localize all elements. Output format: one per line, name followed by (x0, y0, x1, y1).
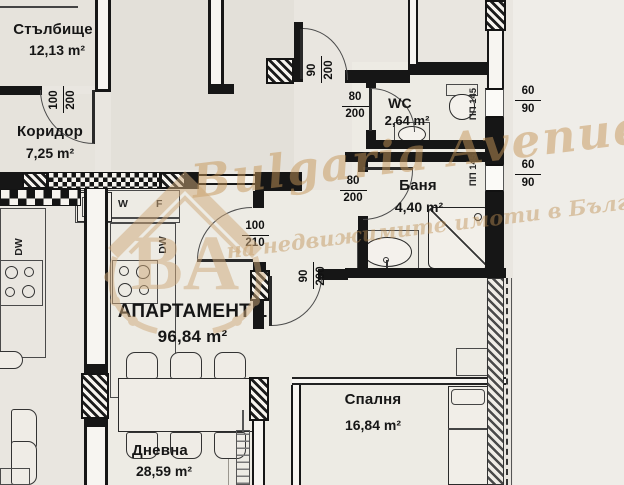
dim-window1-height: 90 (514, 104, 542, 116)
dim-num: 80 (347, 176, 360, 188)
hatch-column (81, 373, 109, 419)
room-area-living: 28,59 m² (104, 464, 224, 479)
stove-burner (5, 266, 18, 279)
dim-den: 200 (316, 266, 328, 285)
watermark-logo: BA (85, 165, 285, 335)
exterior-wall-hatch (487, 278, 504, 485)
wall (0, 86, 42, 95)
room-label-bedroom: Спалня (318, 392, 428, 409)
dim-num: 90 (307, 64, 319, 77)
exterior-wall-line (506, 278, 512, 485)
room-label-living: Дневна (100, 443, 220, 460)
dim-den: 200 (343, 193, 362, 205)
dim-line (515, 100, 541, 101)
dim-num: 90 (299, 270, 311, 283)
room-area-bedroom: 16,84 m² (318, 418, 428, 433)
dim-num: 100 (49, 90, 61, 109)
room-label-wc: WC (380, 96, 420, 111)
hatch-column (249, 377, 269, 421)
dim-door-hall: 90200 (293, 253, 333, 299)
radiator (236, 430, 250, 485)
wall (84, 364, 108, 373)
wall (345, 268, 506, 278)
stove-burner (22, 285, 35, 298)
dim-line (515, 174, 541, 175)
room-label-bath: Баня (390, 178, 446, 195)
nightstand (456, 348, 490, 376)
dim-den: 200 (345, 109, 364, 121)
bed-pillow (451, 389, 485, 405)
window2-mark: ПП 145 (454, 148, 494, 192)
stove-burner (24, 267, 34, 277)
hatch-column (22, 172, 48, 189)
dining-table (118, 378, 262, 432)
dim-window2-height: 90 (514, 178, 542, 190)
neighbour-table-corner (0, 468, 30, 485)
room-area-wc: 2,64 m² (376, 114, 438, 128)
wall (208, 84, 234, 94)
wall (366, 70, 376, 88)
wall (345, 70, 410, 83)
outside-area (513, 0, 624, 485)
wall (0, 172, 22, 189)
dim-door-wc: 80200 (338, 88, 372, 124)
wall-panel (487, 31, 504, 88)
bedroom-north-wall (292, 377, 506, 385)
chair (214, 352, 246, 379)
faucet-icon (383, 257, 389, 263)
wall (252, 421, 265, 485)
room-area-bath: 4,40 m² (388, 200, 450, 215)
wall (84, 419, 108, 427)
dim-window1-width: 60 (514, 86, 542, 98)
logo-monogram: BA (131, 219, 239, 306)
dim-door-entry: 90200 (301, 47, 341, 93)
floor-plan: 100200 90200 80200 80200 100210 90200 60… (0, 0, 624, 485)
dim-num: 80 (349, 92, 362, 104)
room-area-corridor: 7,25 m² (10, 146, 90, 161)
stove-burner (5, 287, 15, 297)
bed-blanket-line (448, 428, 488, 430)
dim-den: 200 (66, 90, 78, 109)
chair (126, 352, 158, 379)
dim-door-stairwell: 100200 (43, 77, 83, 123)
bedroom-west-wall (291, 385, 301, 485)
dim-door-bath: 80200 (336, 172, 370, 208)
room-label-stairwell: Стълбище (6, 22, 100, 39)
room-area-stairwell: 12,13 m² (14, 43, 100, 58)
wall (408, 62, 488, 75)
dim-den: 200 (324, 60, 336, 79)
shaft-wall (408, 0, 418, 64)
room-label-corridor: Коридор (4, 124, 96, 141)
hatch-column (266, 58, 294, 84)
hatch-column (485, 0, 506, 31)
landing-floor (111, 0, 294, 170)
wall (485, 192, 504, 278)
neighbour-dishwasher-label: DW (4, 232, 34, 262)
radiator-pipe (242, 410, 244, 432)
wall (0, 6, 78, 8)
landing-wall (208, 0, 224, 86)
shower-drain (474, 213, 482, 221)
chair (170, 352, 202, 379)
window1-mark: ПП 145 (454, 82, 494, 126)
dim-window2-width: 60 (514, 160, 542, 172)
wall (358, 216, 368, 268)
block-wall (0, 189, 81, 206)
chair (0, 351, 23, 369)
